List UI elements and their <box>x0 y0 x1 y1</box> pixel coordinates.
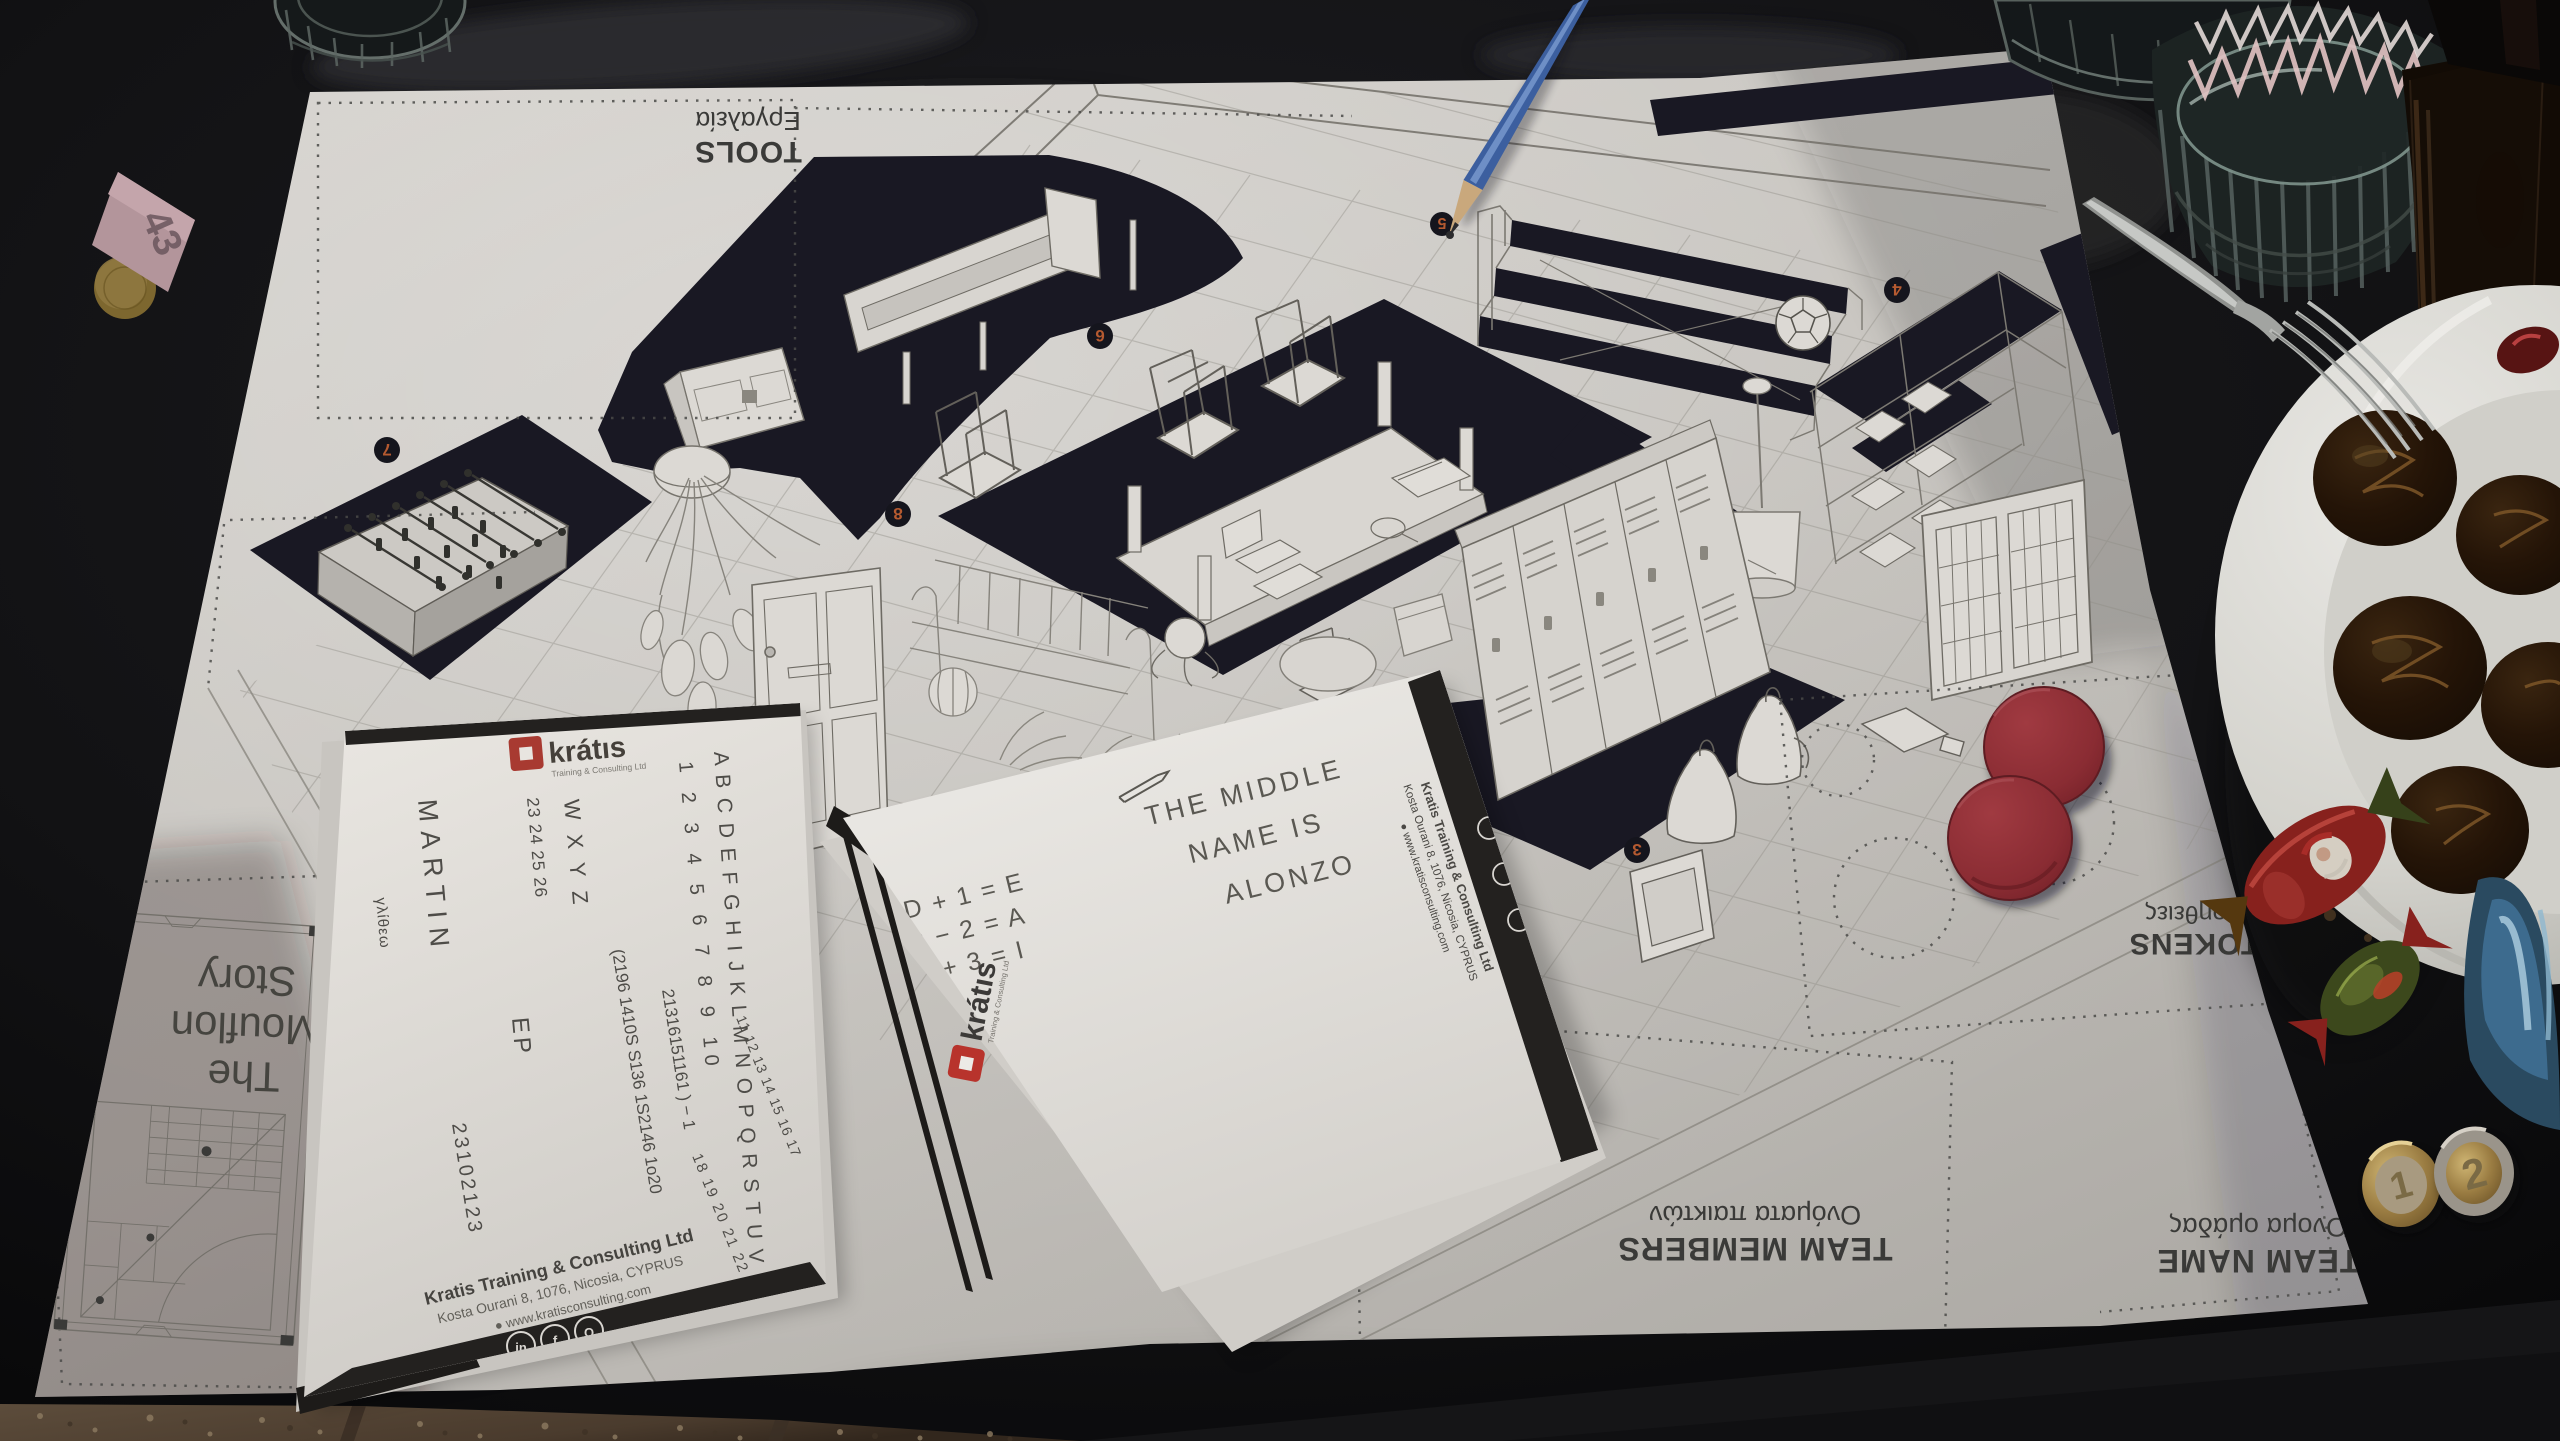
svg-text:EP: EP <box>506 1016 536 1058</box>
svg-text:6: 6 <box>1095 326 1104 345</box>
svg-text:4: 4 <box>1892 280 1902 299</box>
svg-text:Ονόματα παικτών: Ονόματα παικτών <box>1649 1200 1861 1230</box>
svg-text:5: 5 <box>1437 214 1446 231</box>
svg-text:TEAM NAME: TEAM NAME <box>2157 1243 2360 1279</box>
svg-text:TOOLS: TOOLS <box>694 135 802 168</box>
svg-text:Όνομα ομάδας: Όνομα ομάδας <box>2169 1212 2348 1242</box>
svg-text:The: The <box>207 1051 281 1100</box>
svg-text:3: 3 <box>1632 840 1641 859</box>
svg-text:7: 7 <box>382 440 391 459</box>
svg-text:Story: Story <box>197 955 297 1005</box>
svg-text:Mouflon: Mouflon <box>170 1002 321 1054</box>
svg-text:Εργαλεία: Εργαλεία <box>695 106 801 136</box>
svg-text:8: 8 <box>893 504 902 523</box>
svg-text:TEAM MEMBERS: TEAM MEMBERS <box>1617 1231 1892 1267</box>
